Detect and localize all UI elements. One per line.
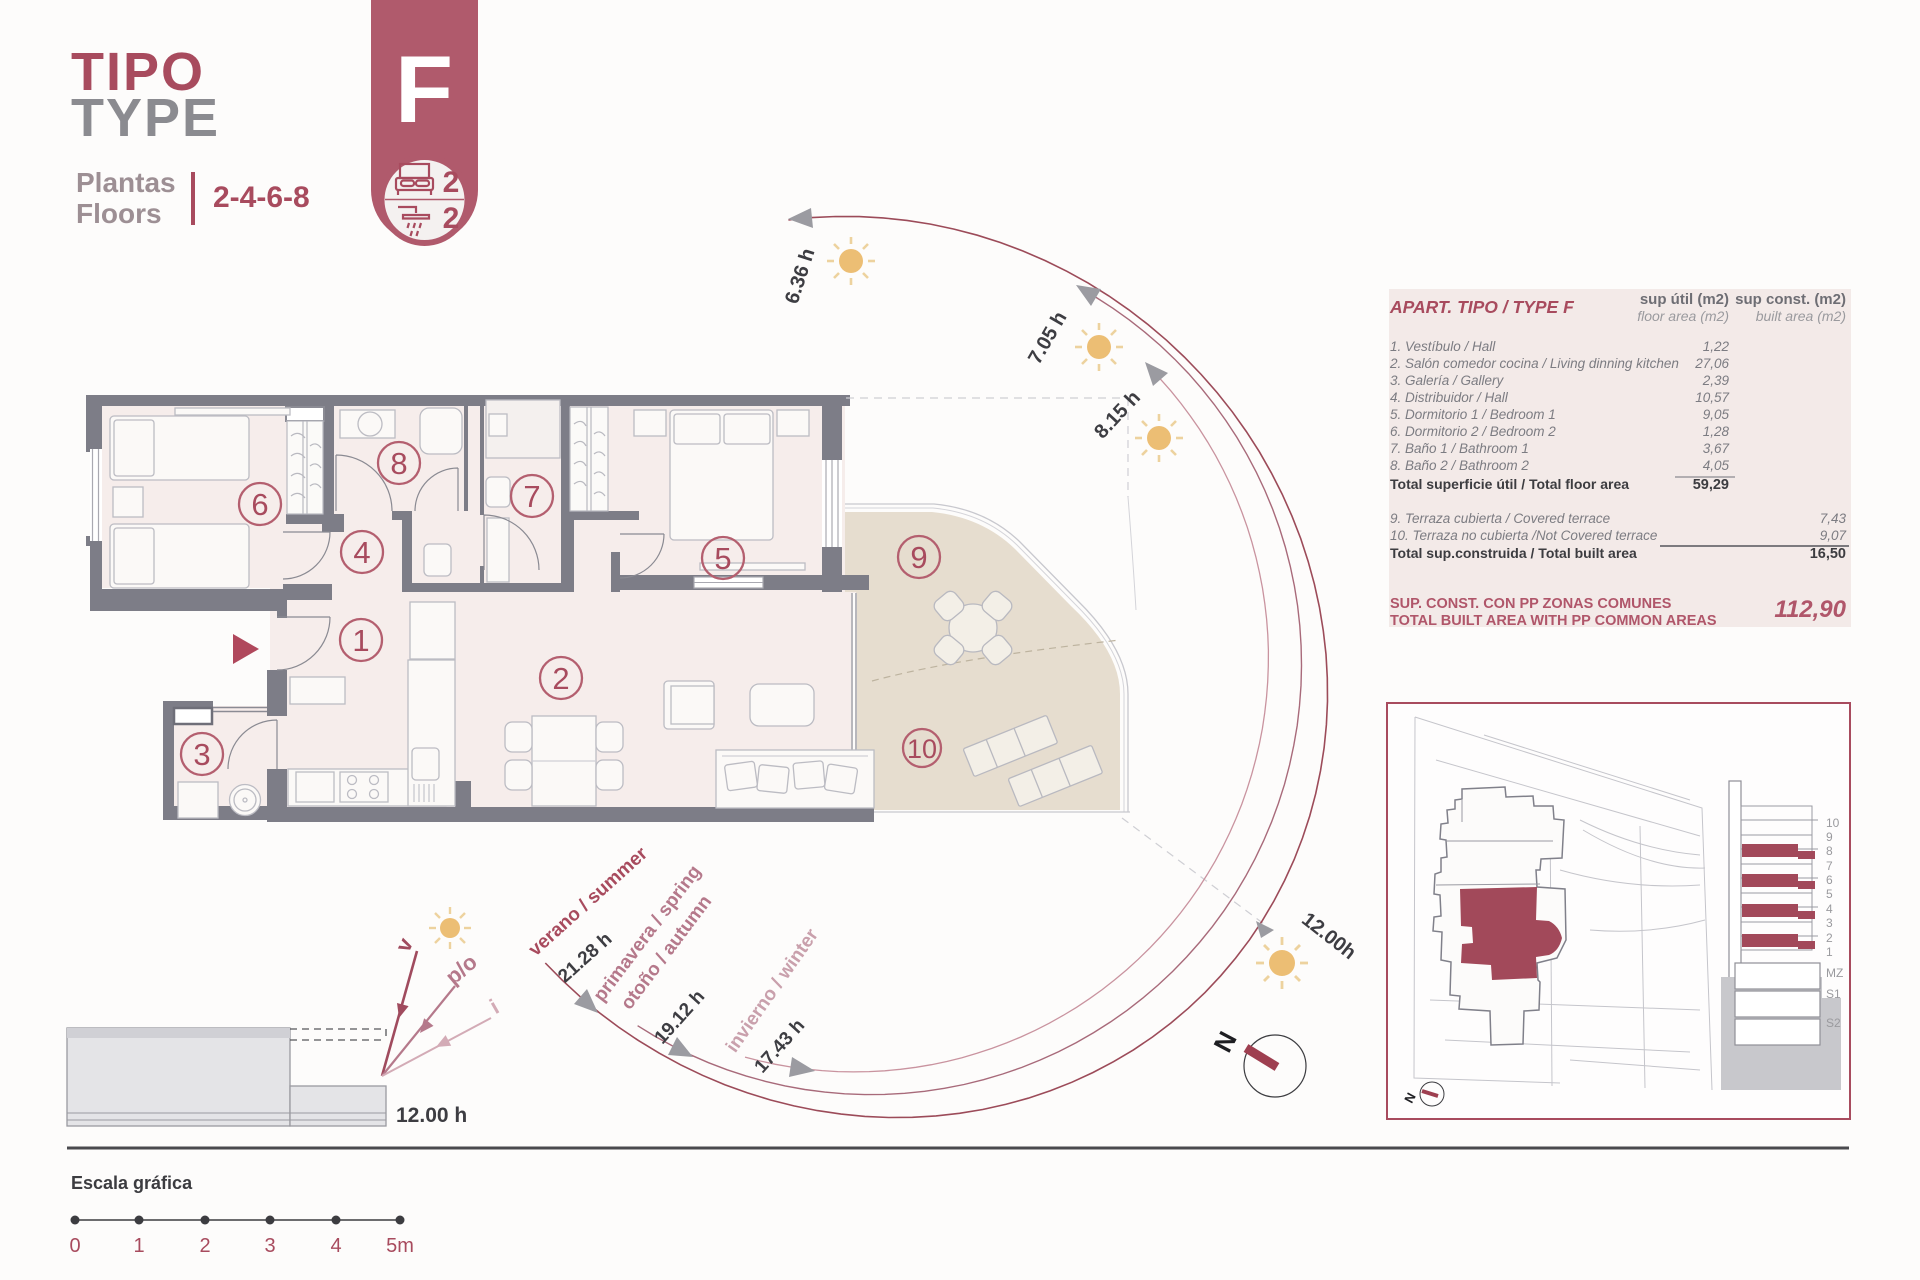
svg-text:3: 3 (193, 737, 210, 772)
svg-text:5: 5 (714, 541, 731, 576)
svg-text:Floors: Floors (76, 198, 162, 229)
svg-text:APART. TIPO / TYPE F: APART. TIPO / TYPE F (1389, 297, 1575, 317)
svg-text:F: F (395, 37, 453, 143)
svg-text:7. Baño 1 / Bathroom 1: 7. Baño 1 / Bathroom 1 (1390, 441, 1529, 456)
svg-text:7,43: 7,43 (1820, 511, 1847, 526)
svg-text:Total sup.construida / Total b: Total sup.construida / Total built area (1390, 545, 1637, 561)
svg-text:16,50: 16,50 (1810, 546, 1846, 562)
svg-text:N: N (1207, 1026, 1242, 1057)
svg-text:27,06: 27,06 (1694, 356, 1729, 371)
svg-text:4. Distribuidor / Hall: 4. Distribuidor / Hall (1390, 390, 1509, 405)
svg-text:2. Salón comedor cocina / Livi: 2. Salón comedor cocina / Living dinning… (1389, 356, 1679, 371)
svg-text:10,57: 10,57 (1695, 390, 1729, 405)
svg-text:12.00 h: 12.00 h (396, 1104, 467, 1127)
svg-text:6. Dormitorio 2 / Bedroom 2: 6. Dormitorio 2 / Bedroom 2 (1390, 424, 1556, 439)
svg-text:2,39: 2,39 (1702, 373, 1730, 388)
svg-text:9,07: 9,07 (1820, 528, 1847, 543)
svg-text:7.05 h: 7.05 h (1024, 308, 1071, 368)
svg-text:Total superficie útil / Total: Total superficie útil / Total floor area (1390, 476, 1629, 492)
svg-text:4,05: 4,05 (1703, 458, 1730, 473)
svg-text:S2: S2 (1826, 1016, 1841, 1030)
svg-text:1: 1 (352, 623, 369, 658)
svg-text:9: 9 (910, 540, 927, 575)
svg-text:6: 6 (1826, 873, 1833, 887)
svg-text:10: 10 (907, 734, 937, 764)
svg-text:7: 7 (523, 479, 540, 514)
svg-text:2-4-6-8: 2-4-6-8 (213, 181, 310, 214)
svg-text:10. Terraza no cubierta /Not C: 10. Terraza no cubierta /Not Covered ter… (1390, 528, 1657, 543)
svg-text:v: v (390, 933, 418, 955)
svg-text:4: 4 (353, 535, 370, 570)
svg-text:112,90: 112,90 (1774, 596, 1846, 623)
svg-text:TOTAL BUILT AREA WITH PP COMMO: TOTAL BUILT AREA WITH PP COMMON AREAS (1390, 613, 1717, 629)
svg-text:59,29: 59,29 (1693, 477, 1729, 493)
svg-text:MZ: MZ (1826, 966, 1843, 980)
svg-text:9. Terraza cubierta / Covered: 9. Terraza cubierta / Covered terrace (1390, 511, 1610, 526)
svg-text:2: 2 (552, 661, 569, 696)
svg-text:built area (m2): built area (m2) (1756, 308, 1846, 324)
svg-text:6.36 h: 6.36 h (781, 246, 819, 307)
svg-text:invierno / winter: invierno / winter (722, 925, 823, 1057)
svg-text:Escala gráfica: Escala gráfica (71, 1173, 193, 1193)
svg-text:8: 8 (390, 446, 407, 481)
svg-text:1: 1 (133, 1235, 144, 1257)
svg-text:19.12 h: 19.12 h (651, 986, 710, 1048)
svg-text:3,67: 3,67 (1703, 441, 1730, 456)
svg-text:S1: S1 (1826, 987, 1841, 1001)
svg-text:3: 3 (264, 1235, 275, 1257)
svg-text:4: 4 (1826, 902, 1833, 916)
svg-text:9: 9 (1826, 830, 1833, 844)
svg-text:3. Galería / Gallery: 3. Galería / Gallery (1390, 373, 1505, 388)
svg-text:1. Vestíbulo / Hall: 1. Vestíbulo / Hall (1390, 339, 1496, 354)
svg-text:8: 8 (1826, 844, 1833, 858)
svg-text:5m: 5m (386, 1235, 414, 1257)
svg-text:SUP. CONST. CON PP ZONAS COMUN: SUP. CONST. CON PP ZONAS COMUNES (1390, 596, 1672, 612)
svg-text:2: 2 (1826, 931, 1833, 945)
svg-text:1: 1 (1826, 945, 1833, 959)
svg-text:10: 10 (1826, 816, 1840, 830)
svg-text:9,05: 9,05 (1703, 407, 1730, 422)
svg-text:1,22: 1,22 (1703, 339, 1730, 354)
svg-text:3: 3 (1826, 916, 1833, 930)
svg-text:5. Dormitorio 1 / Bedroom 1: 5. Dormitorio 1 / Bedroom 1 (1390, 407, 1556, 422)
svg-text:8.15 h: 8.15 h (1090, 387, 1145, 443)
svg-text:2: 2 (199, 1235, 210, 1257)
svg-text:i: i (485, 994, 503, 1019)
svg-text:6: 6 (251, 487, 268, 522)
svg-text:0: 0 (69, 1235, 80, 1257)
svg-text:7: 7 (1826, 859, 1833, 873)
svg-text:1,28: 1,28 (1703, 424, 1730, 439)
svg-text:4: 4 (330, 1235, 341, 1257)
svg-text:sup const. (m2): sup const. (m2) (1735, 291, 1846, 308)
svg-text:8. Baño 2 / Bathroom 2: 8. Baño 2 / Bathroom 2 (1390, 458, 1529, 473)
svg-text:Plantas: Plantas (76, 167, 176, 198)
svg-text:2: 2 (443, 166, 460, 199)
svg-text:sup útil (m2): sup útil (m2) (1640, 291, 1729, 308)
svg-text:TYPE: TYPE (71, 88, 220, 148)
svg-text:12.00h: 12.00h (1297, 908, 1360, 964)
svg-text:p/o: p/o (441, 949, 482, 989)
svg-text:5: 5 (1826, 887, 1833, 901)
svg-text:floor area (m2): floor area (m2) (1637, 308, 1729, 324)
svg-text:2: 2 (443, 202, 460, 235)
